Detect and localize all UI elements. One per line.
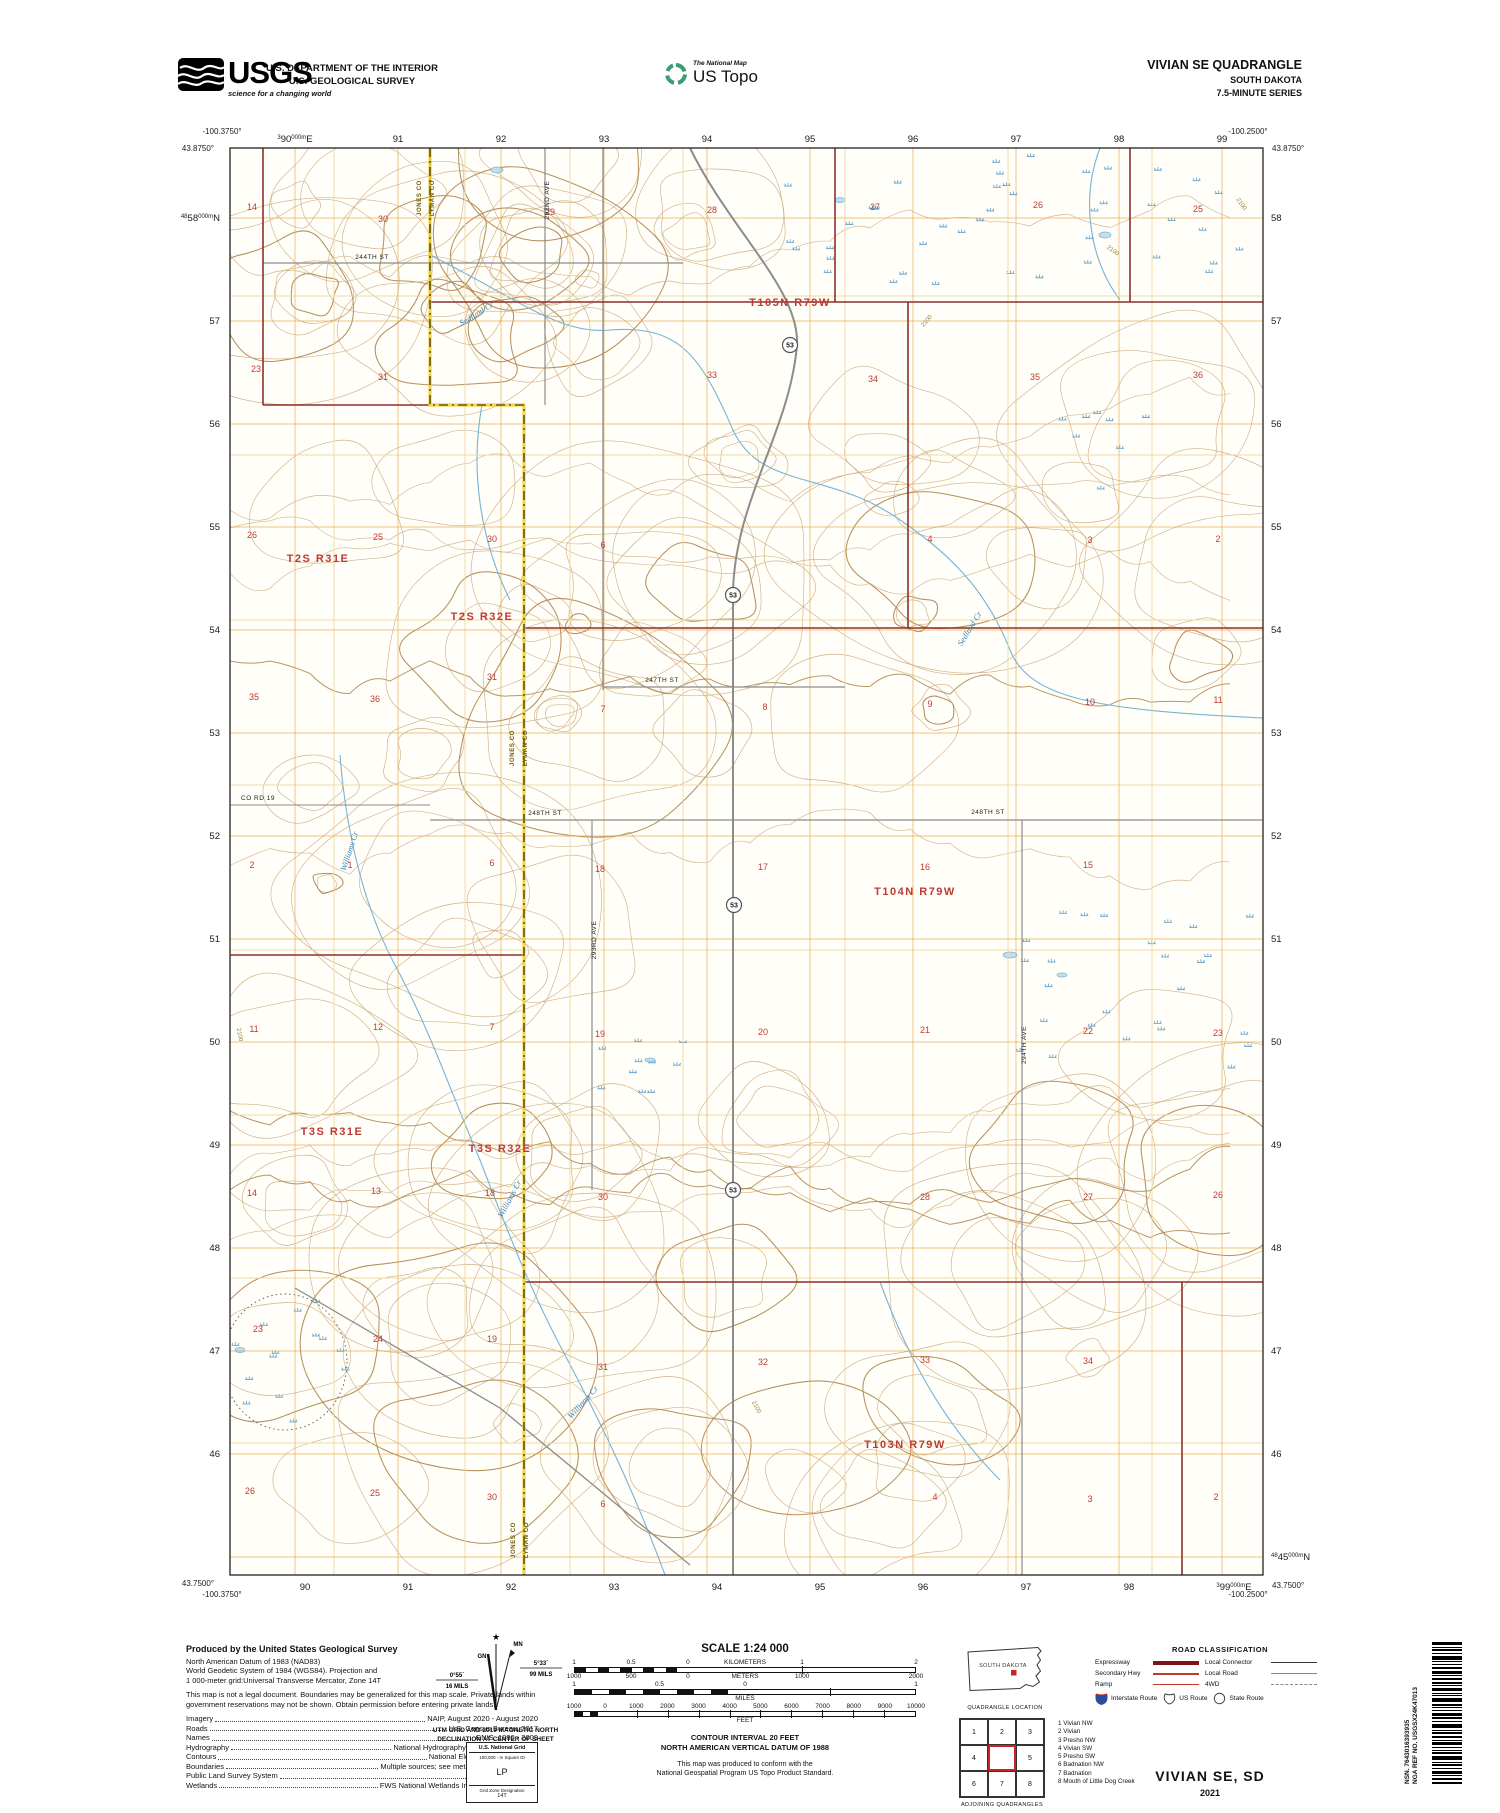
svg-text:94: 94 [712, 1582, 723, 1593]
svg-text:34: 34 [868, 374, 878, 384]
svg-text:15: 15 [1083, 860, 1093, 870]
svg-text:32: 32 [758, 1357, 768, 1367]
adjoining-cell: 2 [988, 1719, 1016, 1745]
svg-text:23: 23 [1213, 1028, 1223, 1038]
nga-ref-number: NGA REF NO. USGSX24K47013 [1412, 1642, 1420, 1784]
svg-text:LYMAN CO: LYMAN CO [524, 1522, 530, 1558]
svg-text:58: 58 [1271, 213, 1282, 224]
usgs-topo-sheet: USGS science for a changing world U.S. D… [0, 0, 1500, 1813]
svg-text:20: 20 [758, 1027, 768, 1037]
svg-text:247TH ST: 247TH ST [645, 677, 679, 684]
svg-text:JONES CO: JONES CO [510, 730, 516, 766]
svg-text:7: 7 [489, 1022, 494, 1032]
svg-text:T104N R79W: T104N R79W [874, 886, 956, 898]
svg-text:-100.3750°: -100.3750° [202, 1590, 241, 1599]
svg-text:JONES CO: JONES CO [511, 1522, 517, 1558]
scale-block: SCALE 1:24 000 10.50KILOMETERS1210005000… [560, 1643, 930, 1778]
nsn-number: NSN. 7643016393935 [1404, 1642, 1412, 1784]
svg-text:16: 16 [920, 862, 930, 872]
svg-text:28: 28 [920, 1192, 930, 1202]
svg-text:6: 6 [600, 1499, 605, 1509]
svg-text:30: 30 [487, 1492, 497, 1502]
adjoining-quad-name: 1 Vivian NW [1058, 1720, 1188, 1728]
svg-text:90: 90 [300, 1582, 311, 1593]
svg-text:12: 12 [373, 1022, 383, 1032]
svg-text:96: 96 [908, 134, 919, 145]
svg-text:SOUTH DAKOTA: SOUTH DAKOTA [979, 1663, 1027, 1669]
svg-text:3: 3 [1087, 535, 1092, 545]
svg-text:35: 35 [1030, 372, 1040, 382]
adjoining-quadrangles: 12345678 ADJOINING QUADRANGLES [952, 1718, 1052, 1808]
scale-title: SCALE 1:24 000 [560, 1643, 930, 1655]
usng-zone-label: Grid Zone Designation [469, 1785, 535, 1793]
svg-text:★: ★ [492, 1632, 500, 1642]
svg-text:26: 26 [245, 1486, 255, 1496]
svg-text:35: 35 [249, 692, 259, 702]
state-route-circle-icon [1213, 1692, 1226, 1705]
svg-text:3: 3 [1087, 1494, 1092, 1504]
svg-text:294TH AVE: 294TH AVE [1021, 1026, 1028, 1064]
svg-text:98: 98 [1114, 134, 1125, 145]
svg-text:31: 31 [487, 672, 497, 682]
svg-text:33: 33 [707, 370, 717, 380]
svg-text:47: 47 [1271, 1346, 1282, 1357]
svg-text:5°33´: 5°33´ [534, 1661, 548, 1667]
svg-text:54: 54 [209, 625, 220, 636]
svg-text:2: 2 [1213, 1492, 1218, 1502]
svg-text:MN: MN [513, 1642, 522, 1648]
svg-text:25: 25 [373, 532, 383, 542]
svg-text:248TH ST: 248TH ST [528, 810, 562, 817]
svg-text:53: 53 [209, 728, 220, 739]
svg-text:56: 56 [209, 419, 220, 430]
usng-zone: 14T [469, 1793, 535, 1799]
svg-text:43.7500°: 43.7500° [1272, 1581, 1304, 1590]
svg-text:92: 92 [496, 134, 507, 145]
svg-text:46: 46 [1271, 1449, 1282, 1460]
svg-text:93: 93 [599, 134, 610, 145]
svg-text:T2S R32E: T2S R32E [451, 611, 514, 623]
svg-text:4845000mN: 4845000mN [1271, 1552, 1310, 1563]
svg-text:11: 11 [249, 1024, 258, 1034]
svg-text:8: 8 [762, 702, 767, 712]
svg-text:31: 31 [378, 372, 388, 382]
svg-text:7: 7 [600, 704, 605, 714]
svg-text:11: 11 [1213, 695, 1222, 705]
svg-text:248TH ST: 248TH ST [971, 809, 1005, 816]
svg-text:2: 2 [249, 860, 254, 870]
svg-text:21: 21 [920, 1025, 930, 1035]
declination-diagram: ★ GN MN 0°55´ 16 MILS 5°33´ 99 MILS UTM … [408, 1628, 583, 1744]
svg-text:24: 24 [373, 1334, 383, 1344]
svg-text:23: 23 [253, 1324, 263, 1334]
svg-text:14: 14 [247, 1188, 257, 1198]
svg-text:97: 97 [1021, 1582, 1032, 1593]
svg-text:54: 54 [1271, 625, 1282, 636]
svg-text:25: 25 [1193, 204, 1203, 214]
svg-text:94: 94 [702, 134, 713, 145]
interstate-shield-icon [1095, 1692, 1108, 1705]
svg-text:T3S R32E: T3S R32E [469, 1143, 532, 1155]
svg-text:-100.3750°: -100.3750° [202, 127, 241, 136]
road-classification: ROAD CLASSIFICATION ExpresswayLocal Conn… [1095, 1645, 1345, 1705]
barcode [1432, 1642, 1462, 1784]
svg-text:10: 10 [1085, 697, 1095, 707]
sheet-name: VIVIAN SE, SD [1120, 1768, 1300, 1784]
adjoining-quad-name: 5 Presho SW [1058, 1753, 1188, 1761]
adjoining-caption: ADJOINING QUADRANGLES [952, 1802, 1052, 1808]
svg-text:2: 2 [1215, 534, 1220, 544]
svg-text:0°55´: 0°55´ [450, 1673, 464, 1679]
svg-text:T105N R79W: T105N R79W [749, 297, 831, 309]
svg-text:293RD AVE: 293RD AVE [591, 920, 598, 959]
svg-text:98: 98 [1124, 1582, 1135, 1593]
svg-text:T3S R31E: T3S R31E [301, 1126, 364, 1138]
quadrangle-location: SOUTH DAKOTA QUADRANGLE LOCATION [960, 1645, 1050, 1711]
adjoining-quad-name: 3 Presho NW [1058, 1737, 1188, 1745]
road-classification-rows: ExpresswayLocal ConnectorSecondary HwyLo… [1095, 1659, 1345, 1688]
topo-map: 1430292827262523313334353626253064323536… [0, 0, 1500, 1813]
svg-text:6: 6 [600, 540, 605, 550]
svg-text:27: 27 [870, 202, 880, 212]
svg-text:244TH ST: 244TH ST [355, 254, 389, 261]
adjoining-cell: 7 [988, 1771, 1016, 1797]
usng-title: U.S. National Grid [469, 1745, 535, 1753]
svg-text:57: 57 [1271, 316, 1282, 327]
usng-square-id: LP [469, 1767, 535, 1777]
route-shield-legend: US Route [1163, 1692, 1207, 1705]
conformance-note-1: This map was produced to conform with th… [560, 1760, 930, 1769]
svg-text:96: 96 [918, 1582, 929, 1593]
svg-text:47: 47 [209, 1346, 220, 1357]
vertical-datum-note: NORTH AMERICAN VERTICAL DATUM OF 1988 [560, 1743, 930, 1753]
svg-text:26: 26 [1213, 1190, 1223, 1200]
road-class-row: Ramp4WD [1095, 1681, 1345, 1688]
contour-interval-note: CONTOUR INTERVAL 20 FEET [560, 1733, 930, 1743]
svg-text:26: 26 [247, 530, 257, 540]
conformance-note-2: National Geospatial Program US Topo Prod… [560, 1769, 930, 1778]
svg-text:99: 99 [1217, 134, 1228, 145]
svg-text:92: 92 [506, 1582, 517, 1593]
svg-text:9: 9 [927, 699, 932, 709]
svg-text:CO RD 19: CO RD 19 [241, 795, 275, 802]
svg-text:JONES CO: JONES CO [417, 180, 423, 216]
usng-square-id-label: 100,000 - m Square ID [469, 1755, 535, 1760]
svg-text:97: 97 [1011, 134, 1022, 145]
svg-text:T2S R31E: T2S R31E [287, 553, 350, 565]
svg-text:22: 22 [1083, 1026, 1093, 1036]
adjoining-cell-current [988, 1745, 1016, 1771]
route-shield-legend: Interstate Route [1095, 1692, 1157, 1705]
svg-text:30: 30 [378, 214, 388, 224]
svg-text:19: 19 [595, 1029, 605, 1039]
svg-text:93: 93 [609, 1582, 620, 1593]
svg-text:14: 14 [247, 202, 257, 212]
svg-text:50: 50 [1271, 1037, 1282, 1048]
adjoining-cell: 4 [960, 1745, 988, 1771]
svg-text:43.8750°: 43.8750° [182, 144, 214, 153]
svg-text:26: 26 [1033, 200, 1043, 210]
svg-text:53: 53 [729, 593, 737, 600]
adjoining-quad-name: 2 Vivian [1058, 1728, 1188, 1736]
barcode-text: NSN. 7643016393935 NGA REF NO. USGSX24K4… [1404, 1642, 1420, 1784]
svg-text:-100.2500°: -100.2500° [1228, 1590, 1267, 1599]
svg-text:34: 34 [1083, 1356, 1093, 1366]
declination-arrows-icon: ★ GN MN 0°55´ 16 MILS 5°33´ 99 MILS [408, 1628, 583, 1720]
svg-text:91: 91 [393, 134, 404, 145]
svg-text:91: 91 [403, 1582, 414, 1593]
svg-text:51: 51 [209, 934, 220, 945]
svg-text:-100.2500°: -100.2500° [1228, 127, 1267, 136]
svg-text:48: 48 [1271, 1243, 1282, 1254]
svg-text:53: 53 [786, 343, 794, 350]
adjoining-cell: 3 [1016, 1719, 1044, 1745]
scale-bars: 10.50KILOMETERS1210005000METERS100020001… [560, 1659, 930, 1725]
svg-text:13: 13 [371, 1186, 381, 1196]
svg-text:17: 17 [758, 862, 768, 872]
svg-text:31: 31 [598, 1362, 608, 1372]
svg-text:55: 55 [1271, 522, 1282, 533]
svg-text:19: 19 [487, 1334, 497, 1344]
svg-text:95: 95 [805, 134, 816, 145]
svg-text:56: 56 [1271, 419, 1282, 430]
svg-text:36: 36 [1193, 370, 1203, 380]
svg-text:57: 57 [209, 316, 220, 327]
road-classification-title: ROAD CLASSIFICATION [1095, 1645, 1345, 1654]
us-route-shield-icon [1163, 1692, 1176, 1705]
svg-text:16 MILS: 16 MILS [446, 1684, 469, 1690]
svg-text:36: 36 [370, 694, 380, 704]
adjoining-cell: 8 [1016, 1771, 1044, 1797]
road-class-row: Secondary HwyLocal Road [1095, 1670, 1345, 1677]
svg-text:51: 51 [1271, 934, 1282, 945]
svg-text:4858000mN: 4858000mN [181, 213, 220, 224]
svg-text:50: 50 [209, 1037, 220, 1048]
usng-box: U.S. National Grid 100,000 - m Square ID… [466, 1742, 538, 1803]
svg-text:LYMAN CO: LYMAN CO [523, 730, 529, 766]
adjoining-cell: 1 [960, 1719, 988, 1745]
svg-text:95: 95 [815, 1582, 826, 1593]
svg-text:49: 49 [209, 1140, 220, 1151]
svg-text:28: 28 [707, 205, 717, 215]
svg-text:390000mE: 390000mE [277, 134, 312, 145]
svg-text:53: 53 [1271, 728, 1282, 739]
svg-text:4: 4 [932, 1492, 937, 1502]
svg-text:LYMAN CO: LYMAN CO [430, 180, 436, 216]
svg-text:6: 6 [489, 858, 494, 868]
svg-text:30: 30 [487, 534, 497, 544]
adjoining-quad-name: 4 Vivian SW [1058, 1745, 1188, 1753]
svg-text:18: 18 [485, 1188, 495, 1198]
svg-text:33: 33 [920, 1355, 930, 1365]
svg-text:43.7500°: 43.7500° [182, 1579, 214, 1588]
quad-location-marker [1011, 1670, 1017, 1676]
svg-text:T103N R79W: T103N R79W [864, 1439, 946, 1451]
adjoining-grid: 12345678 [959, 1718, 1045, 1798]
route-shield-legend: State Route [1213, 1692, 1263, 1705]
svg-text:30: 30 [598, 1192, 608, 1202]
svg-text:43.8750°: 43.8750° [1272, 144, 1304, 153]
svg-text:53: 53 [729, 1188, 737, 1195]
route-shields-row: Interstate RouteUS RouteState Route [1095, 1692, 1345, 1705]
road-class-row: ExpresswayLocal Connector [1095, 1659, 1345, 1666]
svg-text:GN: GN [478, 1654, 487, 1660]
declination-caption-1: UTM GRID AND 2019 MAGNETIC NORTH [408, 1727, 583, 1736]
adjoining-cell: 6 [960, 1771, 988, 1797]
svg-text:55: 55 [209, 522, 220, 533]
sheet-title-block: VIVIAN SE, SD 2021 [1120, 1768, 1300, 1798]
quadrangle-location-caption: QUADRANGLE LOCATION [960, 1705, 1050, 1711]
svg-text:46: 46 [209, 1449, 220, 1460]
svg-text:99 MILS: 99 MILS [530, 1672, 553, 1678]
svg-text:49: 49 [1271, 1140, 1282, 1151]
svg-text:23: 23 [251, 364, 261, 374]
svg-text:53: 53 [730, 903, 738, 910]
adjoining-cell: 5 [1016, 1745, 1044, 1771]
svg-text:48: 48 [209, 1243, 220, 1254]
svg-text:292ND AVE: 292ND AVE [544, 180, 551, 219]
state-outline-icon: SOUTH DAKOTA [965, 1645, 1045, 1695]
svg-text:25: 25 [370, 1488, 380, 1498]
sheet-year: 2021 [1120, 1788, 1300, 1798]
svg-text:4: 4 [927, 534, 932, 544]
svg-text:18: 18 [595, 864, 605, 874]
svg-text:52: 52 [209, 831, 220, 842]
svg-text:27: 27 [1083, 1192, 1093, 1202]
svg-text:52: 52 [1271, 831, 1282, 842]
